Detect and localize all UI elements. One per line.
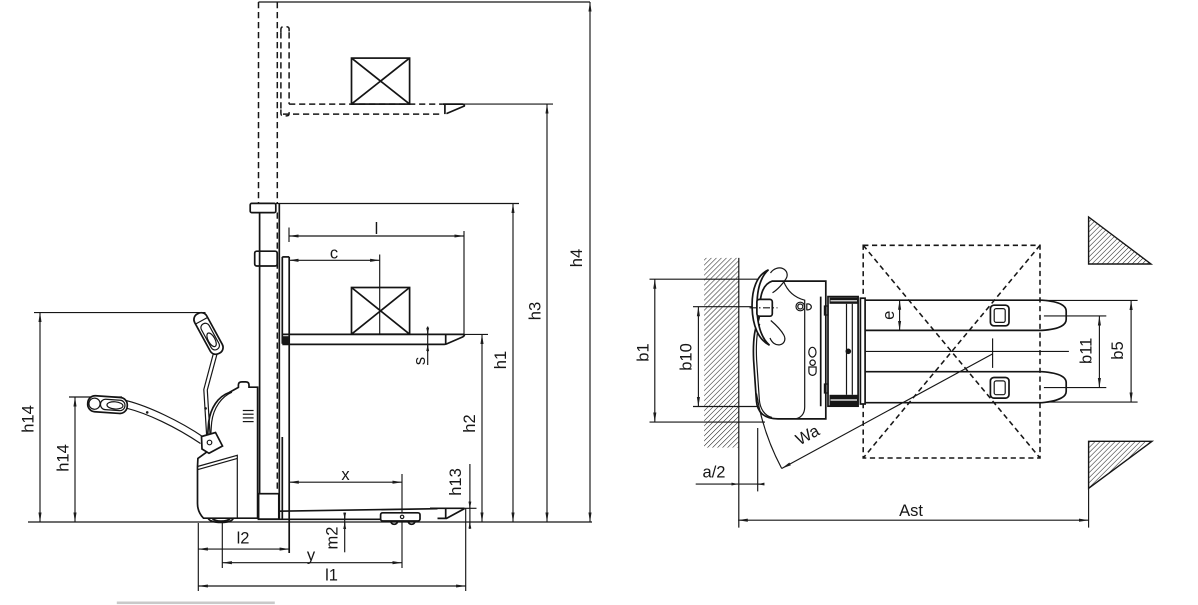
svg-text:b11: b11 bbox=[1077, 338, 1095, 364]
svg-text:Ast: Ast bbox=[899, 502, 923, 520]
svg-text:l: l bbox=[375, 220, 379, 238]
svg-text:e: e bbox=[880, 311, 898, 320]
svg-text:s: s bbox=[411, 357, 429, 365]
svg-text:l1: l1 bbox=[325, 567, 338, 585]
svg-text:h14: h14 bbox=[19, 405, 37, 433]
svg-text:h3: h3 bbox=[526, 302, 544, 320]
svg-text:h14: h14 bbox=[54, 444, 72, 472]
svg-text:l2: l2 bbox=[237, 530, 250, 548]
svg-text:x: x bbox=[341, 466, 350, 484]
svg-text:h4: h4 bbox=[568, 249, 586, 267]
svg-text:m2: m2 bbox=[323, 527, 341, 550]
svg-text:h1: h1 bbox=[492, 351, 510, 369]
svg-text:c: c bbox=[330, 245, 338, 263]
svg-text:y: y bbox=[307, 546, 316, 564]
svg-text:h2: h2 bbox=[461, 414, 479, 432]
svg-text:b1: b1 bbox=[634, 343, 652, 361]
svg-text:h13: h13 bbox=[447, 468, 465, 496]
svg-text:b10: b10 bbox=[677, 343, 695, 371]
svg-text:b5: b5 bbox=[1109, 341, 1127, 359]
svg-text:a/2: a/2 bbox=[703, 464, 726, 482]
